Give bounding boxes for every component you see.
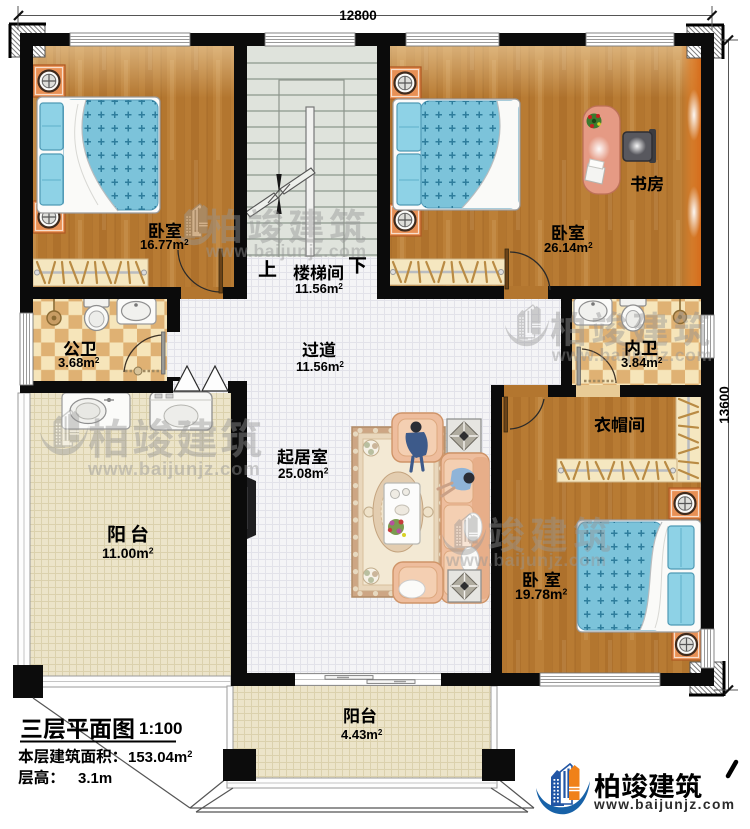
svg-text:19.78m2: 19.78m2 xyxy=(515,586,567,602)
svg-text:www.baijunjz.com: www.baijunjz.com xyxy=(445,550,607,570)
svg-text:www.baijunjz.com: www.baijunjz.com xyxy=(87,458,260,479)
svg-text:12800: 12800 xyxy=(339,8,377,23)
svg-text:16.77m2: 16.77m2 xyxy=(140,237,189,252)
svg-text:www.baijunjz.com: www.baijunjz.com xyxy=(593,797,735,812)
svg-text:13600: 13600 xyxy=(717,386,732,424)
svg-text:25.08m2: 25.08m2 xyxy=(278,466,329,481)
svg-text:11.56m2: 11.56m2 xyxy=(296,359,344,374)
svg-text:11.00m2: 11.00m2 xyxy=(102,545,154,561)
svg-text:26.14m2: 26.14m2 xyxy=(544,240,593,255)
svg-text:3.68m2: 3.68m2 xyxy=(58,355,100,370)
svg-text:1:100: 1:100 xyxy=(139,719,182,738)
svg-text:4.43m2: 4.43m2 xyxy=(341,727,383,742)
svg-text:3.84m2: 3.84m2 xyxy=(621,355,663,370)
svg-text:www.baijunjz.com: www.baijunjz.com xyxy=(205,241,367,261)
svg-text:153.04m2: 153.04m2 xyxy=(128,749,192,766)
svg-text:11.56m2: 11.56m2 xyxy=(295,281,343,296)
svg-text:3.1m: 3.1m xyxy=(78,770,112,787)
